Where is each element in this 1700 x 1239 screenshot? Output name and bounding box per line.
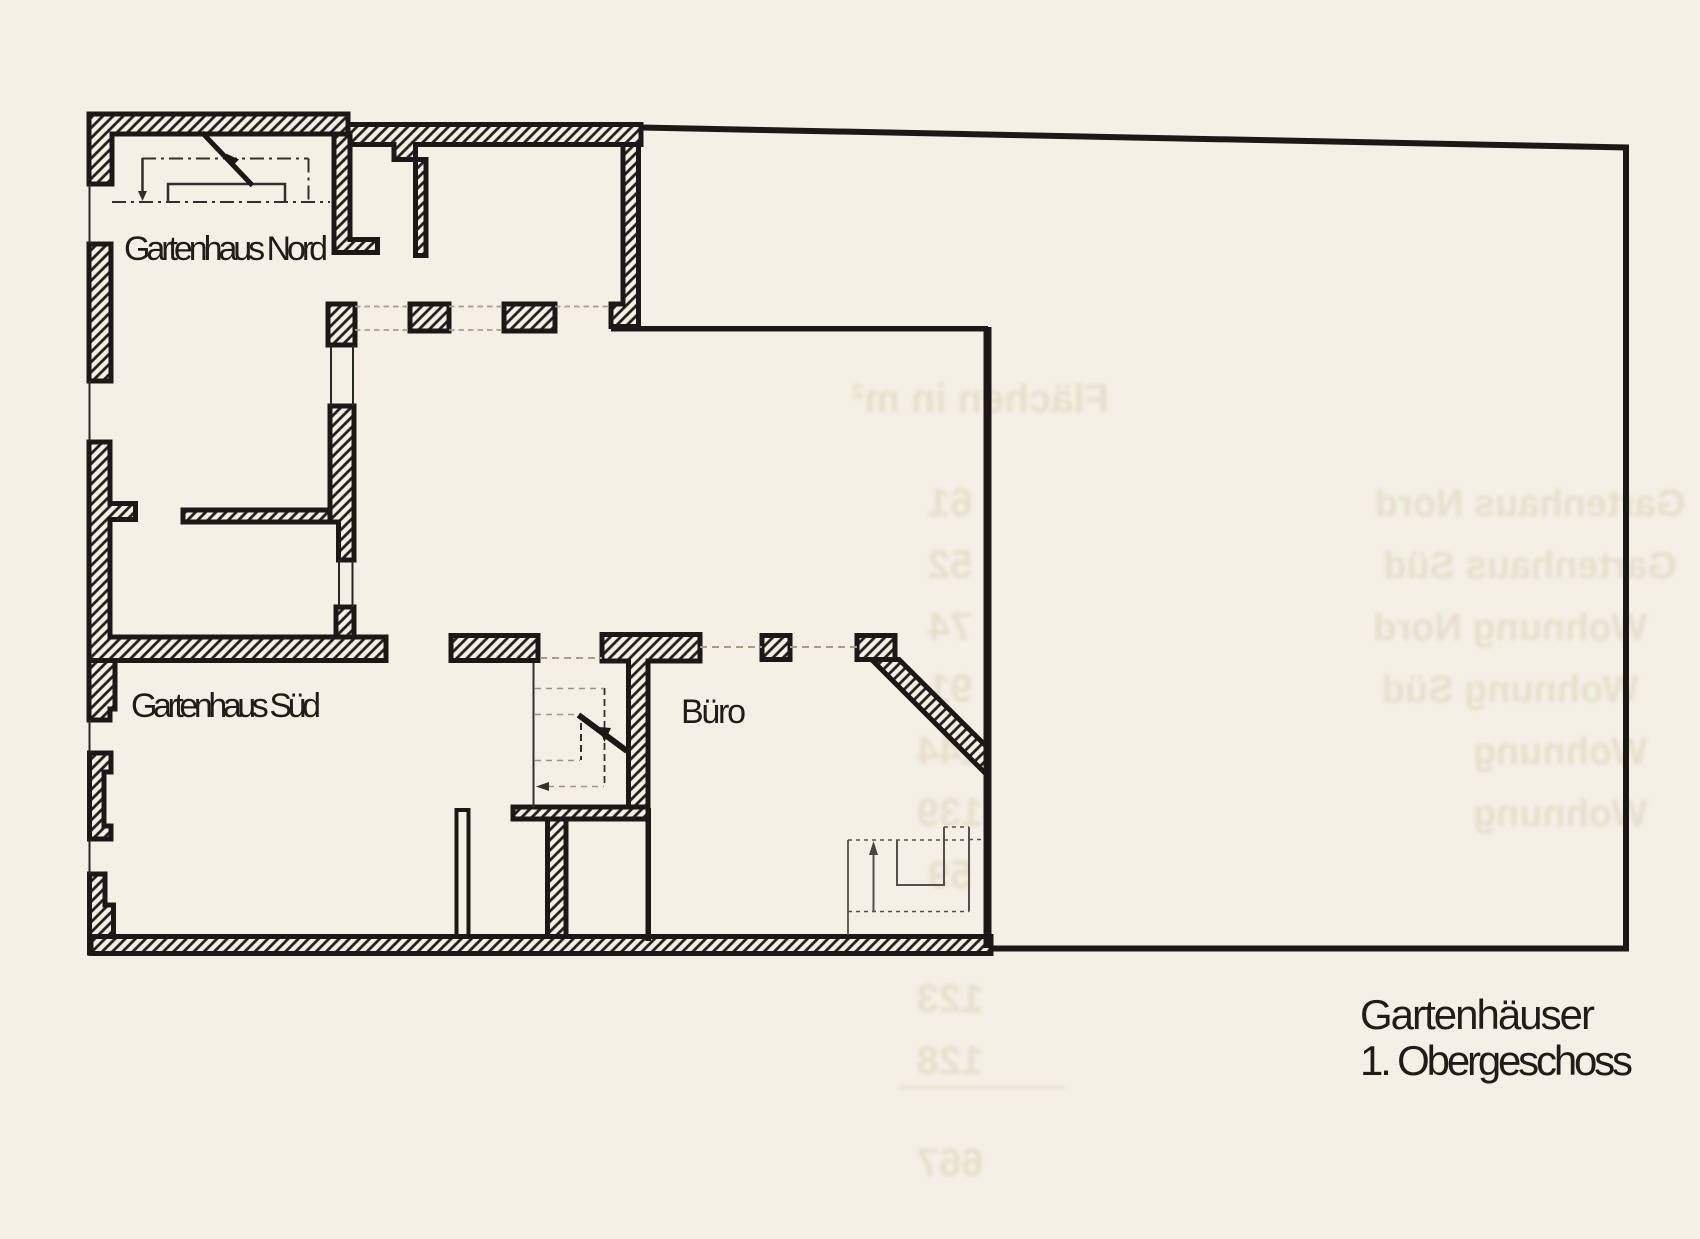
svg-text:74: 74 bbox=[927, 605, 972, 649]
svg-text:Wohnung Süd: Wohnung Süd bbox=[1382, 669, 1639, 711]
svg-text:Gartenhaus Nord: Gartenhaus Nord bbox=[124, 230, 328, 268]
svg-text:61: 61 bbox=[928, 481, 973, 525]
svg-text:52: 52 bbox=[928, 543, 973, 587]
svg-text:139: 139 bbox=[917, 791, 984, 835]
svg-text:Büro: Büro bbox=[681, 693, 746, 731]
svg-text:128: 128 bbox=[917, 1039, 984, 1083]
svg-text:Wohnung: Wohnung bbox=[1473, 793, 1647, 835]
svg-text:Flächen in m²: Flächen in m² bbox=[851, 377, 1109, 421]
svg-text:Wohnung Nord: Wohnung Nord bbox=[1373, 607, 1647, 649]
svg-text:59: 59 bbox=[928, 853, 973, 897]
svg-text:1. Obergeschoss: 1. Obergeschoss bbox=[1360, 1037, 1633, 1084]
svg-text:Gartenhaus Nord: Gartenhaus Nord bbox=[1375, 483, 1685, 525]
svg-text:667: 667 bbox=[917, 1141, 984, 1185]
svg-text:123: 123 bbox=[917, 977, 984, 1021]
svg-text:Gartenhaus Süd: Gartenhaus Süd bbox=[131, 687, 321, 725]
svg-text:Gartenhäuser: Gartenhäuser bbox=[1360, 991, 1595, 1038]
svg-text:Gartenhaus Süd: Gartenhaus Süd bbox=[1383, 545, 1677, 587]
svg-text:Wohnung: Wohnung bbox=[1473, 731, 1647, 773]
